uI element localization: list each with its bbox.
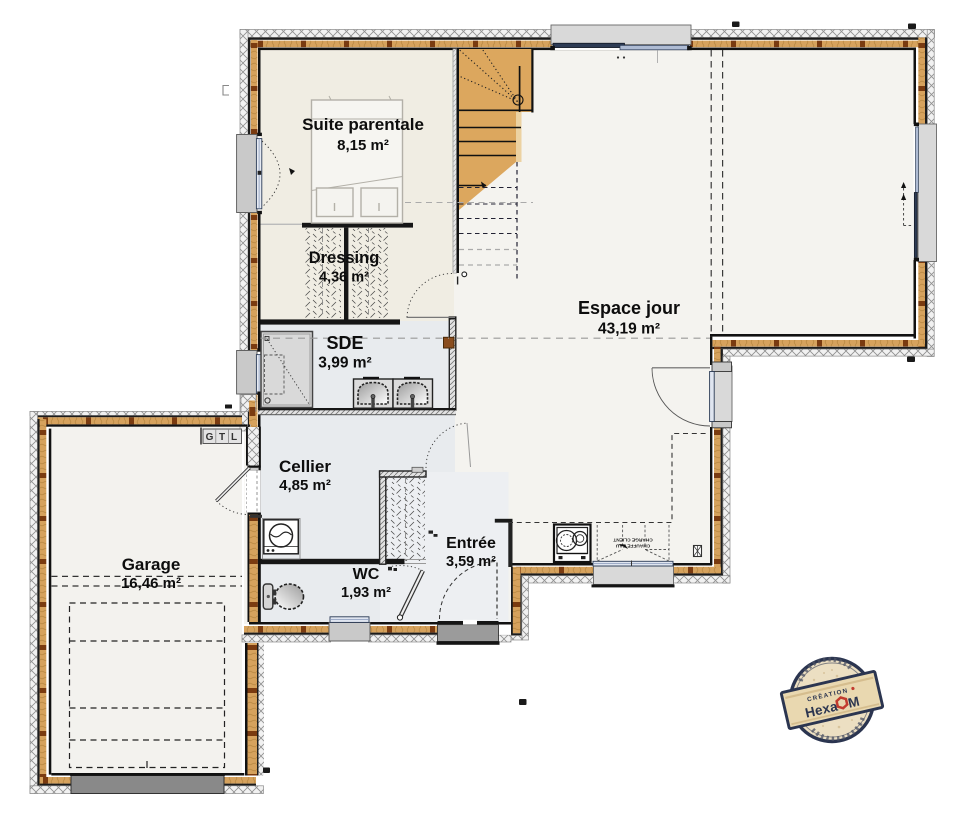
svg-text:4,36 m²: 4,36 m² [319, 270, 369, 286]
svg-text:8,15 m²: 8,15 m² [337, 137, 389, 154]
svg-text:1,93 m²: 1,93 m² [341, 585, 391, 601]
svg-text:Suite parentale: Suite parentale [302, 115, 424, 134]
svg-text:Entrée: Entrée [446, 535, 496, 552]
svg-text:CHARGE CLIENT: CHARGE CLIENT [613, 537, 653, 543]
svg-text:16,46 m²: 16,46 m² [121, 575, 181, 592]
svg-text:L: L [231, 432, 237, 443]
svg-text:Espace jour: Espace jour [578, 298, 680, 318]
svg-text:3,59 m²: 3,59 m² [446, 554, 496, 570]
svg-text:CHAUFFE EAU: CHAUFFE EAU [615, 543, 650, 549]
svg-text:Garage: Garage [122, 555, 181, 574]
svg-text:3,99 m²: 3,99 m² [318, 355, 371, 372]
svg-text:WC: WC [353, 566, 380, 583]
svg-text:43,19 m²: 43,19 m² [598, 321, 660, 338]
svg-text:T: T [219, 432, 225, 443]
svg-text:4,85 m²: 4,85 m² [279, 477, 331, 494]
svg-text:Cellier: Cellier [279, 457, 331, 476]
svg-text:G: G [206, 432, 214, 443]
svg-text:SDE: SDE [326, 333, 363, 353]
svg-text:Dressing: Dressing [309, 249, 380, 267]
